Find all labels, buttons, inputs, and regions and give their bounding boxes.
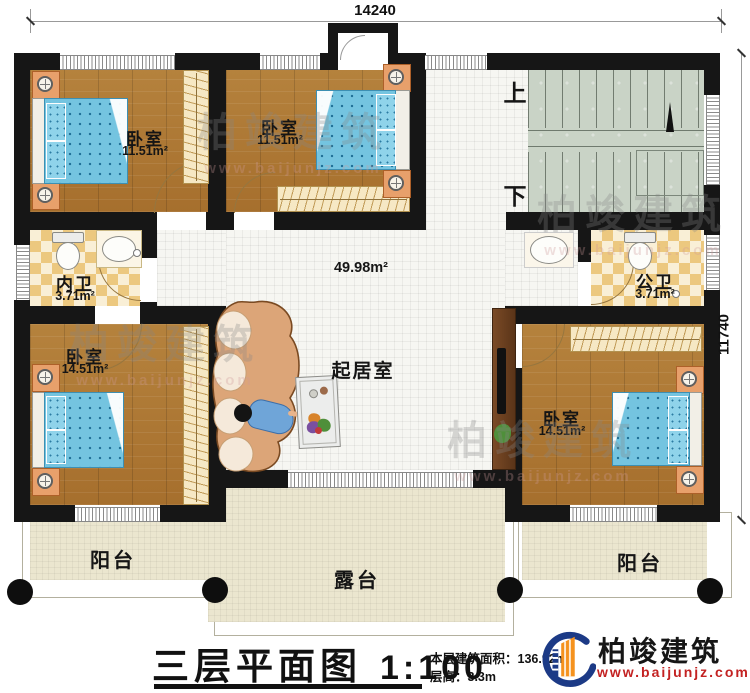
wall (487, 53, 720, 70)
room-area: 11.51m² (240, 133, 320, 147)
stairs-down-label: 下 (498, 177, 532, 211)
lamp-icon (388, 69, 404, 85)
column (7, 579, 33, 605)
terrace-label: 露台 (322, 564, 392, 593)
sofa (206, 296, 310, 478)
wall (206, 212, 226, 230)
coffee-table-top (299, 379, 336, 445)
tv-icon (497, 348, 506, 414)
room-area: 3.71m² (620, 287, 690, 301)
wall (14, 505, 75, 522)
column (202, 577, 228, 603)
terrace-floor (208, 488, 505, 622)
hall-west-floor (157, 230, 226, 306)
stairs-up-label: 上 (498, 74, 532, 108)
wall (160, 505, 226, 522)
lamp-icon (37, 473, 53, 489)
bed-headboard (394, 90, 410, 170)
wall (657, 505, 720, 522)
sliding-door (75, 507, 160, 522)
pillow (376, 94, 396, 130)
pillow (668, 430, 688, 464)
window (706, 235, 720, 290)
brand-url: www.baijunjz.com (597, 664, 750, 680)
pillow (46, 430, 66, 464)
wall (704, 53, 720, 95)
sliding-door (570, 507, 657, 522)
room-area: 14.51m² (522, 424, 602, 438)
wall (505, 306, 720, 324)
bay-niche-wall (388, 23, 398, 70)
window (425, 55, 487, 70)
lamp-icon (681, 471, 697, 487)
balcony-left-label: 阳台 (78, 544, 148, 573)
wall (704, 185, 720, 235)
sink-icon (530, 236, 568, 264)
wall (208, 53, 226, 212)
window (60, 55, 175, 70)
room-area: 14.51m² (45, 362, 125, 376)
column (497, 577, 523, 603)
stairs-upper-flight (528, 70, 704, 128)
bed-headboard (688, 392, 702, 466)
wall (14, 306, 95, 324)
switch-icon (133, 249, 141, 257)
pillow (46, 396, 66, 430)
wall (140, 302, 157, 324)
window (260, 55, 320, 70)
pillow (46, 141, 66, 179)
wall (505, 470, 522, 522)
stairs-direction-arrow-icon (666, 102, 674, 132)
wardrobe (570, 326, 702, 352)
column (697, 578, 723, 604)
sliding-door (288, 472, 473, 488)
lamp-icon (388, 175, 404, 191)
wall (473, 470, 505, 488)
dimension-width: 14240 (330, 2, 420, 19)
wall (578, 230, 591, 262)
dimension-line-right (741, 53, 742, 520)
dimension-line-top (30, 21, 722, 22)
dimension-height: 11740 (716, 307, 733, 363)
stairs-landing-line (528, 130, 704, 131)
wall (14, 300, 30, 522)
wall (226, 212, 234, 230)
stairs-landing (636, 150, 704, 196)
title-underline (154, 684, 422, 689)
balcony-right-label: 阳台 (605, 547, 675, 576)
window (706, 95, 720, 185)
wall (506, 212, 704, 230)
wall (140, 212, 157, 258)
pillow (668, 396, 688, 430)
coffee-table (295, 375, 341, 449)
lamp-icon (37, 187, 53, 203)
stairs-landing-line (528, 146, 704, 147)
hall-area-label: 49.98m² (316, 260, 406, 276)
toilet-icon (56, 242, 80, 270)
person-head (234, 404, 252, 422)
lamp-icon (681, 371, 697, 387)
lamp-icon (37, 76, 53, 92)
brand-logo-icon (538, 626, 596, 688)
window (16, 245, 30, 300)
wall (274, 212, 426, 230)
living-room-label: 起居室 (320, 356, 406, 383)
room-area: 3.71m² (40, 289, 110, 303)
wall (14, 212, 152, 230)
room-area: 11.51m² (105, 144, 185, 158)
drawing-title-text: 三层平面图 (152, 636, 362, 690)
pillow (46, 103, 66, 141)
floor-plan: 卧室 11.51m² 卧室 11.51m² 内卫 3.71m² 公卫 3.71m… (0, 0, 750, 693)
toilet-icon (628, 242, 652, 270)
floor-height-note: 层高：3.3m (430, 666, 496, 685)
bay-niche-wall (328, 23, 338, 70)
plant-icon (494, 424, 511, 443)
pillow (376, 130, 396, 166)
wardrobe (183, 70, 209, 184)
sink-icon (102, 236, 136, 262)
